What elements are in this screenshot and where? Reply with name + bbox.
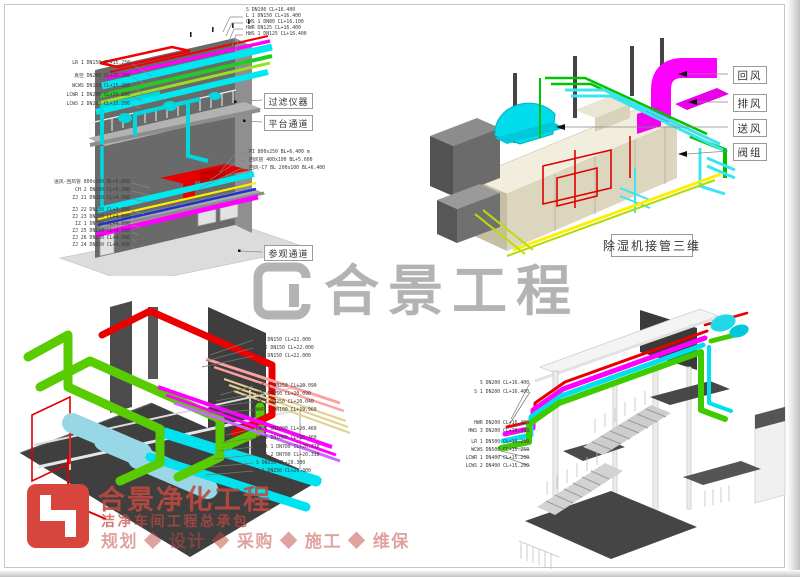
company-logo-icon	[27, 484, 89, 548]
pipe-label: ZJ 24 DN150 CL+4.600	[54, 243, 130, 248]
pipe-label: WCWS DN150 CL+15.250	[56, 84, 130, 89]
pipe-label: S DN100 CL+16.400	[246, 8, 295, 13]
pipe-label: CH 2 DN100 CL+5.200	[54, 188, 130, 193]
duct-label: 回风-C7 BL 200x100 BL+6.400	[249, 166, 325, 171]
pipe-label: LR 1 DN150 CL+15.250	[56, 61, 130, 66]
pipe-label: L 1 DN150 CL+16.400	[246, 14, 301, 19]
pipe-label: S 1 DN250 CL+20.300	[256, 469, 311, 474]
pipe-label: LCWR 1 DN400 CL+15.200	[443, 456, 529, 461]
pipe-label: S 1 DN200 CL+16.400	[443, 390, 529, 395]
company-services: 规划 ◆ 设计 ◆ 采购 ◆ 施工 ◆ 维保	[101, 527, 410, 552]
callout-filter-instrument: 过滤仪器	[264, 93, 313, 109]
callout-platform-walkway: 平台通道	[264, 115, 313, 131]
pipe-label: CWS 1 DN80 CL+16.100	[246, 20, 304, 25]
pipe-label: HWS 1 DN125 CL+16.400	[246, 32, 307, 37]
pipe-label: LCWS 2 DN200 CL+15.200	[56, 102, 130, 107]
callout-exhaust-air: 排风	[733, 94, 767, 112]
pipe-label: S DN200 CL+16.400	[443, 381, 529, 386]
pipe-label: HWR DN200 CL+16.400	[443, 421, 529, 426]
pipe-label: HWR DN250 CL+20.090	[256, 392, 311, 397]
duct-label: PI 800x250 BL+6.400 m	[249, 150, 310, 155]
company-logo	[27, 484, 89, 553]
pipe-label: ZJ 21 DN150 CL+4.600	[54, 196, 130, 201]
pipe-label: CW 1 DN250 CL+20.040	[256, 400, 314, 405]
diagram2-caption: 除湿机接管三维	[611, 234, 693, 257]
pipe-label: ZJ 22 DN150 CL+4.600	[54, 208, 130, 213]
pipe-label: S DN350 CL+20.300	[256, 461, 305, 466]
callout-valve-group: 阀组	[733, 143, 767, 161]
duct-label: 回风管 400x100 BL+5.600	[249, 158, 313, 163]
pipe-label: HWS 3 DN250 CL+20.090	[256, 384, 317, 389]
sheet: 合景工程	[0, 0, 800, 577]
pipe-label: WWP 1 DN100 CL+19.960	[256, 408, 317, 413]
pipe-label: ZJ 26 DN150 CL+4.600	[54, 236, 130, 241]
pipe-label: N 9 DN150 CL+22.000	[256, 338, 311, 343]
pipe-label: ZJ 23 DN150 CL+4.600	[54, 215, 130, 220]
pipe-label: WCWS DN500 CL+15.250	[443, 448, 529, 453]
pipe-label: 真空 DN200 CL+15.200	[56, 74, 130, 79]
callout-supply-air: 送风	[733, 119, 767, 137]
pipe-label: F 3 DN150 CL+22.000	[256, 354, 311, 359]
pipe-label: ZJ 25 DN150 CL+4.600	[54, 229, 130, 234]
pipe-label: WCWS DN1000 CL+20.460	[256, 436, 317, 441]
callout-visitor-walkway: 参观通道	[264, 245, 313, 261]
callout-return-air: 回风	[733, 66, 767, 84]
pipe-label: IZ 1 DN100 CL+4.600	[54, 222, 130, 227]
pipe-label: LR 1 DN1000 CL+20.460	[256, 427, 317, 432]
pipe-label: LCWR 1 DN200 CL+15.200	[56, 93, 130, 98]
pipe-label: HWR DN125 CL+16.400	[246, 26, 301, 31]
pipe-label: HWS 3 DN200 CL+16.400	[443, 429, 529, 434]
pipe-label: 送风-回风管 800x100 BL+5.650	[54, 180, 130, 185]
pipe-label: F 22 DN150 CL+22.000	[256, 346, 314, 351]
pipe-label: LCWR 1 DN700 CL+20.310	[256, 445, 320, 450]
pipe-label: LCWS 2 DN700 CL+20.310	[256, 453, 320, 458]
pipe-label: LR 1 DN500 CL+15.250	[443, 440, 529, 445]
pipe-label: LCWS 2 DN400 CL+15.200	[443, 464, 529, 469]
